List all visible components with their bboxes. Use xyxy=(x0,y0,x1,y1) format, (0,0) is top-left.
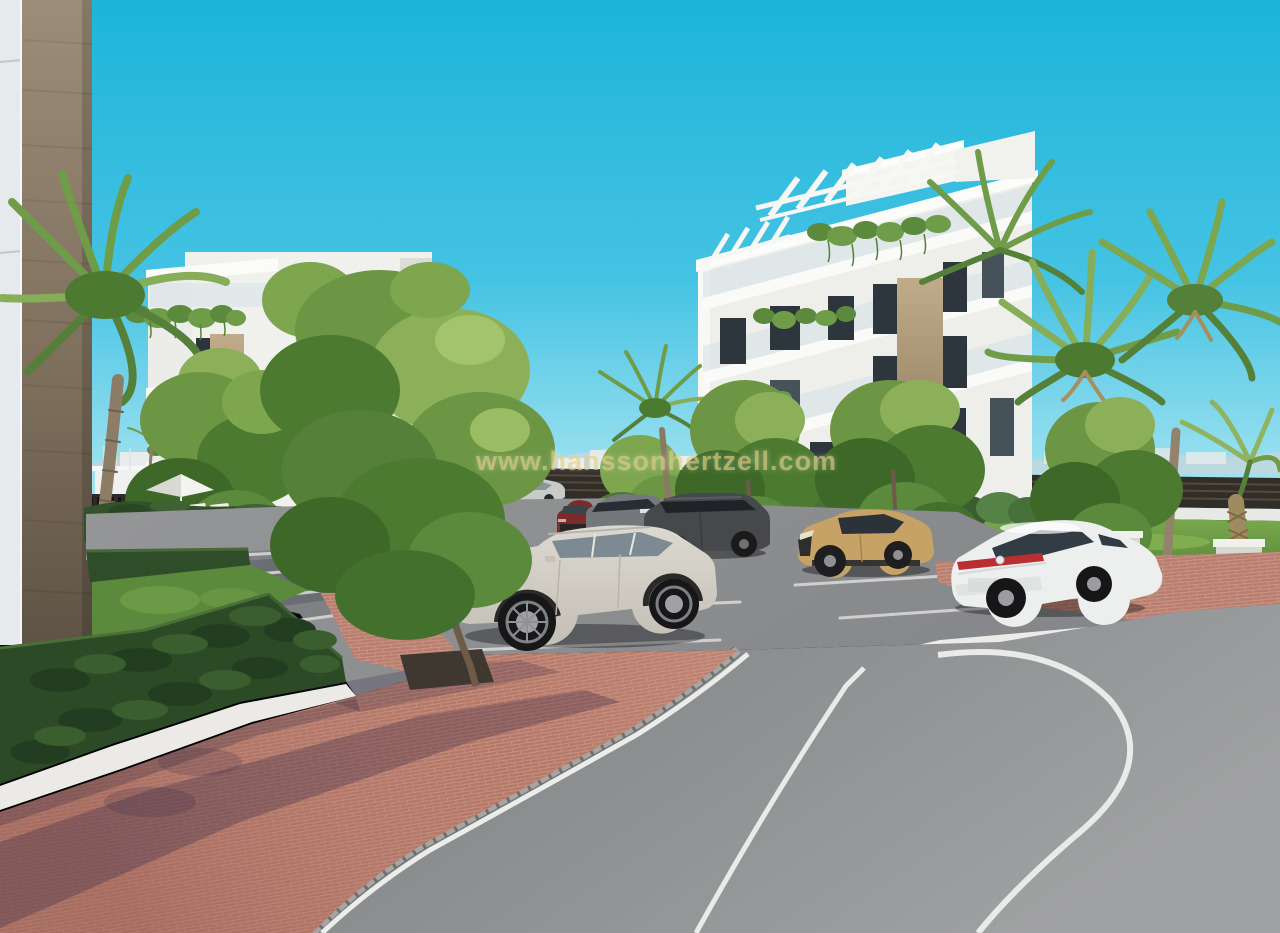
render-scene xyxy=(0,0,1280,933)
property-render-image: www.hanssonhertzell.com xyxy=(0,0,1280,933)
side-mirror xyxy=(545,556,555,562)
brand-badge xyxy=(996,556,1004,564)
